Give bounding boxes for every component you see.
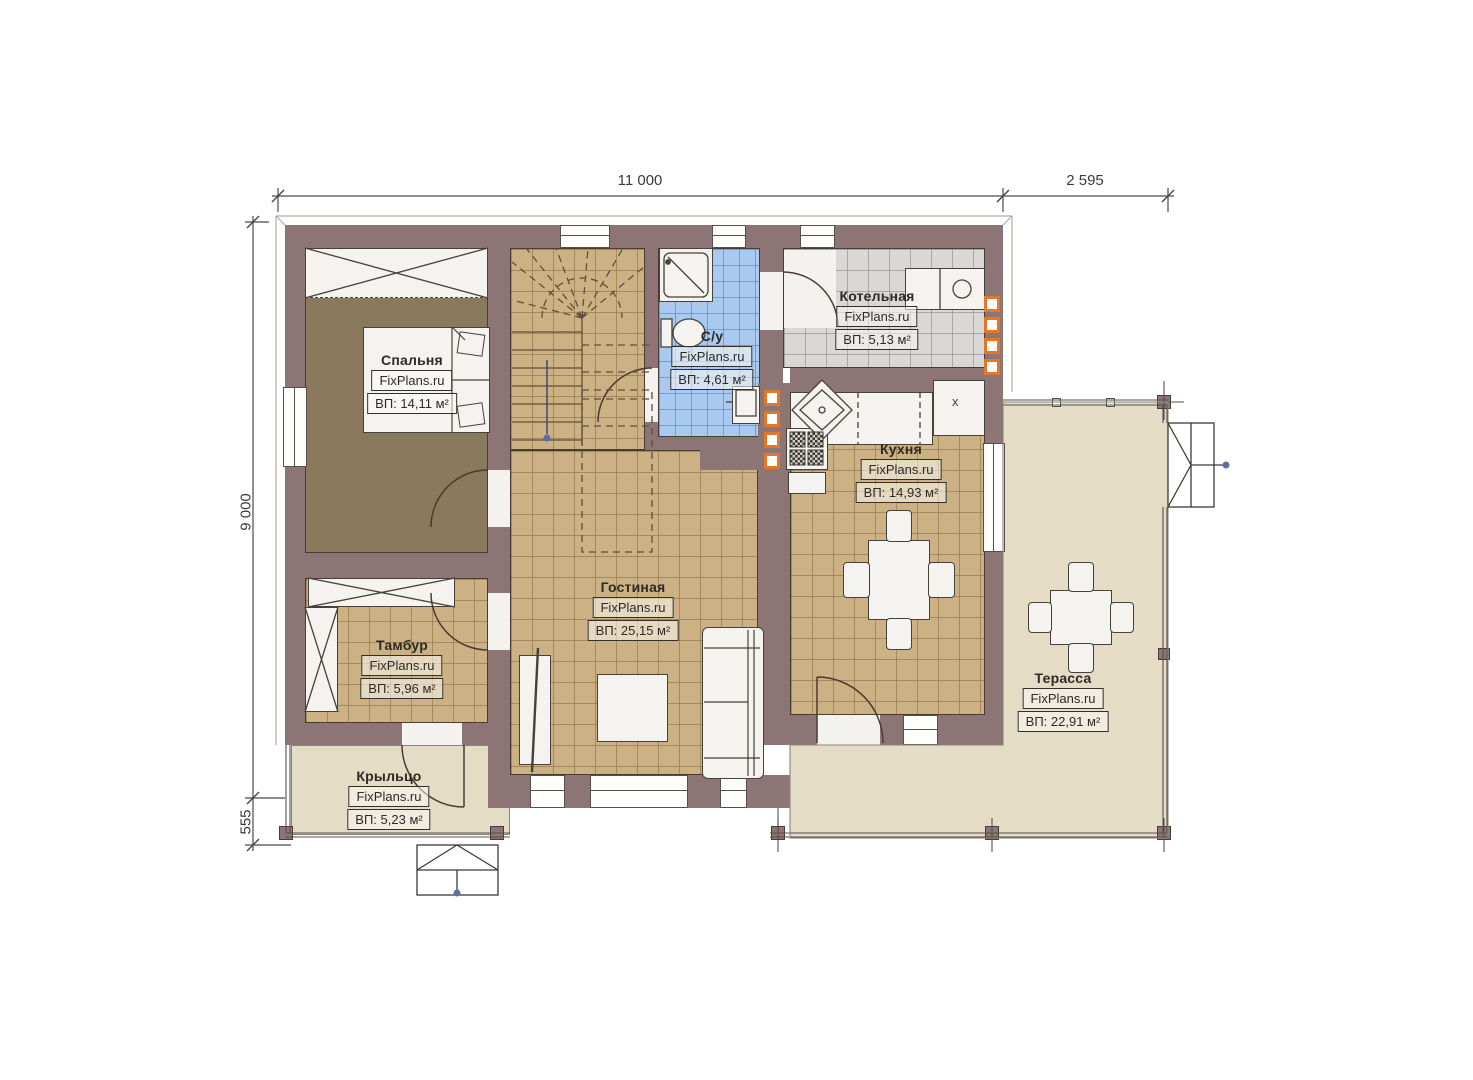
- area-box-terrace: ВП: 22,91 м²: [1018, 711, 1109, 732]
- area-box-vestibule: ВП: 5,96 м²: [360, 678, 443, 699]
- vent-kitchen-2: [764, 411, 780, 427]
- boiler-door-swing-area: [784, 250, 836, 328]
- front-door-opening: [402, 723, 462, 745]
- vent-boiler-4: [984, 359, 1000, 375]
- terrace-steps: [1168, 423, 1230, 507]
- terrace-chair-right: [1110, 602, 1134, 633]
- area-box-boiler: ВП: 5,13 м²: [835, 329, 918, 350]
- brand-box-bathroom: FixPlans.ru: [671, 346, 752, 367]
- window-top-bathroom: [712, 225, 746, 248]
- terrace-rail-post-1: [1052, 398, 1061, 407]
- terrace-post-bottom-mid: [985, 826, 999, 840]
- dining-table: [868, 540, 930, 620]
- area-box-bedroom: ВП: 14,11 м²: [367, 393, 457, 414]
- dim-left-main: 9 000: [238, 493, 255, 531]
- vestibule-door-opening: [488, 593, 510, 650]
- dining-chair-right: [928, 562, 955, 598]
- terrace-chair-left: [1028, 602, 1052, 633]
- dining-chair-bottom: [886, 618, 912, 650]
- tv-stand: [519, 655, 551, 765]
- terrace-post-top-right: [1157, 395, 1171, 409]
- cabinet-under-stove: [788, 472, 826, 494]
- vestibule-wardrobe-left: [305, 607, 338, 712]
- porch-post-right: [490, 826, 504, 840]
- room-label-vestibule: Тамбур FixPlans.ru ВП: 5,96 м²: [360, 637, 443, 699]
- room-name-bathroom: С/у: [701, 328, 723, 344]
- kitchen-terrace-door-opening: [817, 715, 880, 745]
- dining-chair-left: [843, 562, 870, 598]
- room-label-terrace: Терасса FixPlans.ru ВП: 22,91 м²: [1018, 670, 1109, 732]
- window-living-bottom-wide: [590, 775, 688, 808]
- dining-chair-top: [886, 510, 912, 542]
- porch-steps: [417, 845, 498, 897]
- terrace-post-right-mid: [1158, 648, 1170, 660]
- dim-top-right: 2 595: [1066, 172, 1104, 189]
- vent-boiler-1: [984, 296, 1000, 312]
- wall-bedroom-vestibule: [285, 553, 510, 578]
- wall-vestibule-bottom: [285, 723, 510, 745]
- kitchen-cabinet-x: [933, 380, 985, 436]
- bedroom-door-opening: [488, 470, 510, 527]
- shower: [659, 248, 713, 302]
- room-label-boiler: Котельная FixPlans.ru ВП: 5,13 м²: [835, 288, 918, 350]
- wall-kitchen-bottom: [758, 715, 1003, 745]
- room-name-kitchen: Кухня: [880, 441, 922, 457]
- area-box-bathroom: ВП: 4,61 м²: [670, 369, 753, 390]
- terrace-post-bottom-left: [771, 826, 785, 840]
- brand-box-terrace: FixPlans.ru: [1022, 688, 1103, 709]
- area-box-living: ВП: 25,15 м²: [588, 620, 679, 641]
- terrace-chair-bottom: [1068, 643, 1094, 673]
- sofa: [702, 627, 764, 779]
- room-name-boiler: Котельная: [839, 288, 914, 304]
- vent-kitchen-1: [764, 390, 780, 406]
- room-name-terrace: Терасса: [1035, 670, 1092, 686]
- kitchen-cabinet-x-mark: x: [952, 394, 959, 409]
- window-living-bottom-2: [720, 775, 747, 808]
- area-box-kitchen: ВП: 14,93 м²: [856, 482, 947, 503]
- room-label-bathroom: С/у FixPlans.ru ВП: 4,61 м²: [670, 328, 753, 390]
- window-kitchen-bottom: [903, 715, 938, 745]
- brand-box-kitchen: FixPlans.ru: [860, 459, 941, 480]
- room-label-porch: Крыльцо FixPlans.ru ВП: 5,23 м²: [347, 768, 430, 830]
- brand-box-living: FixPlans.ru: [592, 597, 673, 618]
- area-box-porch: ВП: 5,23 м²: [347, 809, 430, 830]
- brand-box-bedroom: FixPlans.ru: [371, 370, 452, 391]
- vent-boiler-2: [984, 317, 1000, 333]
- stove: [786, 428, 828, 470]
- bedroom-wardrobe: [305, 248, 488, 298]
- vent-kitchen-3: [764, 432, 780, 448]
- brand-box-boiler: FixPlans.ru: [836, 306, 917, 327]
- porch-post-left: [279, 826, 293, 840]
- terrace-table: [1050, 590, 1112, 645]
- terrace-chair-top: [1068, 562, 1094, 592]
- room-name-porch: Крыльцо: [356, 768, 421, 784]
- window-living-bottom-1: [530, 775, 565, 808]
- brand-box-vestibule: FixPlans.ru: [361, 655, 442, 676]
- bathroom-door-opening: [645, 368, 658, 422]
- vestibule-wardrobe-top: [308, 578, 455, 607]
- wall-bathroom-left-lower: [645, 422, 658, 437]
- bathroom-sink: [732, 386, 760, 424]
- room-name-vestibule: Тамбур: [376, 637, 428, 653]
- wall-top: [285, 225, 1003, 248]
- window-top-boiler: [800, 225, 835, 248]
- brand-box-porch: FixPlans.ru: [348, 786, 429, 807]
- room-name-bedroom: Спальня: [381, 352, 443, 368]
- vent-boiler-3: [984, 338, 1000, 354]
- dim-left-bottom: 555: [238, 809, 255, 834]
- room-label-bedroom: Спальня FixPlans.ru ВП: 14,11 м²: [367, 352, 457, 414]
- wall-bathroom-left-upper: [645, 248, 658, 368]
- coffee-table: [597, 674, 668, 742]
- wall-left: [285, 248, 305, 745]
- boiler-door-opening: [760, 272, 783, 330]
- room-label-living: Гостиная FixPlans.ru ВП: 25,15 м²: [588, 579, 679, 641]
- room-label-kitchen: Кухня FixPlans.ru ВП: 14,93 м²: [856, 441, 947, 503]
- room-name-living: Гостиная: [601, 579, 666, 595]
- bed-pillow-top: [457, 331, 486, 356]
- window-bedroom-left: [283, 387, 307, 467]
- window-top-stairs: [560, 225, 610, 248]
- hall-stairs-floor: [510, 248, 645, 450]
- dim-top-main: 11 000: [618, 172, 663, 189]
- vent-kitchen-4: [764, 453, 780, 469]
- bed-pillow-bottom: [457, 402, 486, 427]
- floor-plan-canvas: 11 000 2 595 9 000 555 x Спальня FixPlan…: [0, 0, 1473, 1080]
- terrace-post-bottom-right: [1157, 826, 1171, 840]
- window-kitchen-right: [983, 443, 1005, 552]
- terrace-rail-post-2: [1106, 398, 1115, 407]
